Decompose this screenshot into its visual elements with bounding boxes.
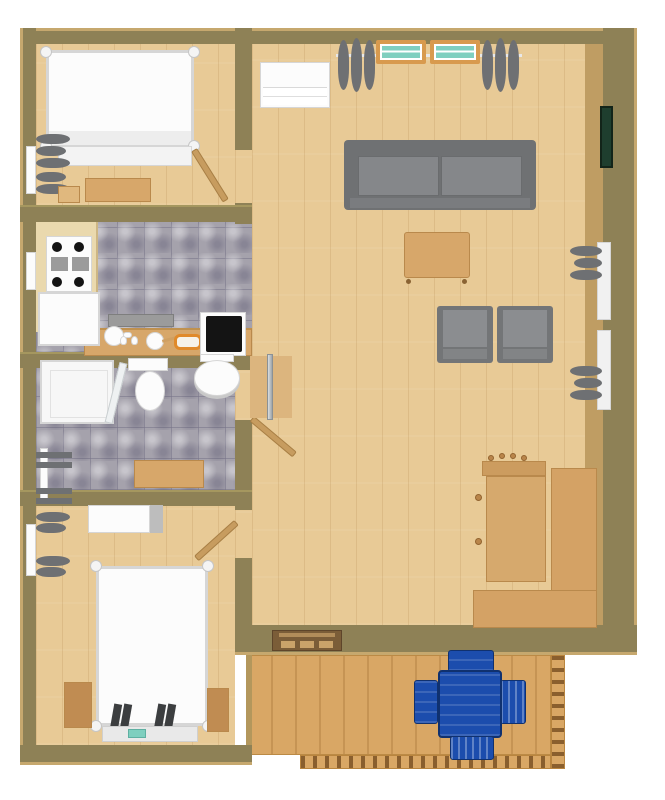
curtain-swag (574, 258, 602, 268)
window-glass[interactable] (434, 44, 476, 60)
stove-burner (52, 242, 62, 252)
towel-rack (36, 498, 72, 504)
patio-chair-right[interactable] (500, 680, 526, 724)
chair-knob (510, 453, 516, 459)
cabinet-drawers (263, 87, 327, 105)
wall-bottom-left-wing (20, 745, 252, 765)
nightstand[interactable] (58, 186, 80, 203)
shaker (120, 336, 127, 345)
towel-rack (36, 462, 72, 468)
stove-griddle (51, 257, 68, 271)
bed[interactable] (46, 50, 194, 148)
floor-plan (0, 0, 665, 800)
doorway-threshold (235, 150, 252, 205)
curtain-swag (570, 270, 602, 280)
curtain-swag (36, 158, 70, 168)
bread-tray[interactable] (174, 334, 202, 350)
curtain-swag (36, 134, 70, 144)
bathroom-bench[interactable] (134, 460, 204, 488)
shaker (131, 336, 138, 345)
armchair-cushion (503, 310, 547, 347)
curtain-swag (36, 172, 66, 182)
curtain-swag (36, 523, 66, 533)
patio-chair-top[interactable] (448, 650, 494, 672)
stove-burner (74, 242, 84, 252)
toilet-tank (128, 358, 168, 371)
stove-burner (74, 277, 84, 287)
foot-bench[interactable] (102, 726, 198, 742)
curtain-swag (36, 146, 66, 156)
desk-bottom[interactable] (473, 590, 597, 628)
coat-rack[interactable] (267, 354, 273, 420)
doormat-pattern (319, 641, 333, 648)
desk-chair[interactable] (486, 476, 546, 582)
curtain-swag (495, 38, 506, 92)
dresser[interactable] (88, 505, 150, 533)
chair-knob (499, 453, 505, 459)
bed-sheet-fold (49, 131, 191, 145)
curtain-swag (570, 246, 602, 256)
patio-chair-bottom[interactable] (450, 736, 494, 760)
doormat-pattern (281, 641, 295, 648)
dresser-side (150, 505, 163, 533)
towel-rack[interactable] (36, 452, 72, 458)
window-glass[interactable] (380, 44, 422, 60)
cabinet[interactable] (260, 62, 330, 108)
window-frame[interactable] (26, 252, 36, 290)
curtain-swag (364, 40, 375, 90)
patio-chair-left[interactable] (414, 680, 438, 724)
shower-drain-lines (50, 370, 108, 418)
armchair[interactable] (497, 306, 553, 363)
shower[interactable] (40, 360, 114, 424)
window-frame[interactable] (26, 146, 36, 194)
wall-left (20, 28, 36, 765)
deck-shadow-edge (246, 655, 252, 755)
curtain-swag (508, 40, 519, 90)
sofa[interactable] (344, 140, 536, 210)
sofa-cushion (358, 156, 439, 196)
sofa-cushion (441, 156, 522, 196)
curtain-swag (482, 40, 493, 90)
sofa-front (350, 198, 530, 208)
stove-griddle (72, 257, 89, 271)
armchair-front (443, 349, 487, 359)
wall-divider-seg (235, 558, 252, 625)
stove[interactable] (46, 236, 92, 292)
armchair-cushion (443, 310, 487, 347)
bed-post (202, 560, 214, 572)
bed[interactable] (96, 566, 208, 726)
bed-post (40, 46, 52, 58)
deck-railing-bottom (300, 755, 551, 769)
patio-table[interactable] (438, 670, 502, 738)
table-leg (462, 279, 467, 284)
bed-post (90, 560, 102, 572)
wall-bedroom1-kitchen (20, 205, 252, 222)
doorway-threshold (235, 508, 252, 560)
black-cooktop[interactable] (206, 316, 242, 352)
curtain-swag (351, 38, 362, 92)
chair-arm-knob (475, 494, 482, 501)
towel-rack (36, 488, 72, 494)
storage-chest[interactable] (64, 682, 92, 728)
curtain-swag (574, 378, 602, 388)
curtain-swag (570, 366, 602, 376)
dresser[interactable] (85, 178, 151, 202)
deck-railing-right (551, 655, 565, 769)
table-leg (406, 279, 411, 284)
curtain-swag (36, 567, 66, 577)
armchair-front (503, 349, 547, 359)
curtain-swag (338, 40, 349, 90)
desk-chair-back (482, 461, 546, 476)
toilet[interactable] (135, 371, 165, 411)
wall-top (20, 28, 637, 44)
armchair[interactable] (437, 306, 493, 363)
chair-arm-knob (475, 538, 482, 545)
wall-divider-seg (235, 28, 252, 150)
doormat-pattern (300, 641, 314, 648)
stove-burner (52, 277, 62, 287)
curtain-swag (36, 512, 70, 522)
pedestal-sink[interactable] (194, 360, 240, 396)
doormat-pattern (279, 633, 335, 637)
window-frame[interactable] (26, 524, 36, 576)
bed-footboard (58, 146, 192, 166)
coffee-table[interactable] (404, 232, 470, 278)
doormat[interactable] (272, 630, 342, 651)
wall-picture[interactable] (600, 106, 613, 168)
storage-chest[interactable] (207, 688, 229, 732)
curtain-swag (36, 556, 70, 566)
fridge[interactable] (38, 292, 100, 346)
kitchen-sink[interactable] (108, 314, 174, 327)
curtain-swag (570, 390, 602, 400)
bench-tray (128, 729, 146, 738)
bed-post (188, 46, 200, 58)
